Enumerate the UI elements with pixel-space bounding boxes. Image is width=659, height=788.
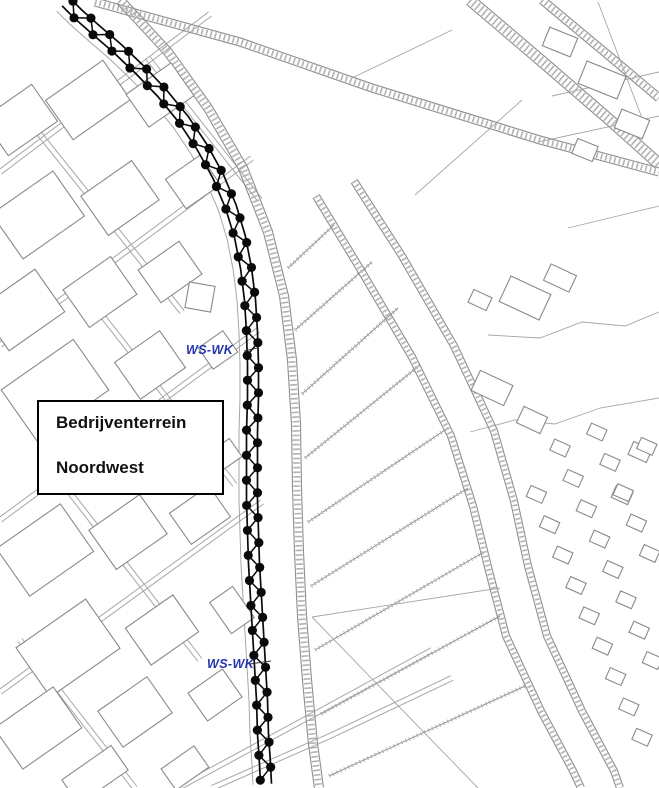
boundary-dot [86, 14, 95, 23]
building-outline [63, 257, 137, 328]
building-outline [165, 155, 220, 209]
boundary-dot [253, 726, 262, 735]
house-outline [639, 545, 659, 563]
house-outline [553, 546, 573, 564]
boundary-dot [252, 701, 261, 710]
boundary-dot [258, 613, 267, 622]
map-viewport: Bedrijventerrein Noordwest WS-WK WS-WK [0, 0, 659, 788]
boundary-dot [255, 563, 264, 572]
boundary-dot [242, 238, 251, 247]
building-outline [89, 495, 167, 570]
boundary-dot [253, 438, 262, 447]
boundary-dot [244, 551, 253, 560]
building-outline [0, 269, 65, 351]
house-outline [592, 637, 612, 655]
boundary-dot [242, 326, 251, 335]
building-outline [516, 406, 547, 433]
building-outline [0, 171, 84, 259]
building-outline [0, 504, 94, 596]
building-outline [125, 595, 198, 665]
boundary-dot [240, 301, 249, 310]
house-outline [629, 621, 649, 639]
building-outline [544, 264, 577, 292]
boundary-dot [260, 638, 269, 647]
boundary-dot [254, 751, 263, 760]
boundary-dot [159, 99, 168, 108]
building-outline [542, 27, 577, 57]
house-outline [589, 530, 609, 548]
boundary-dot [254, 538, 263, 547]
boundary-dot [253, 488, 262, 497]
boundary-dot [243, 401, 252, 410]
building-outline [499, 276, 551, 320]
area-label-line1: Bedrijventerrein [56, 413, 218, 433]
building-outline [471, 370, 513, 405]
building-outline [185, 282, 215, 312]
house-outline [566, 577, 586, 595]
house-outline [579, 607, 599, 625]
boundary-dot [189, 139, 198, 148]
boundary-dot [262, 688, 271, 697]
boundary-dot [254, 388, 263, 397]
boundary-dot [256, 776, 265, 785]
building-outline [188, 669, 242, 721]
boundary-dot [248, 626, 257, 635]
boundary-dot [234, 252, 243, 261]
house-outline [603, 561, 623, 579]
house-outline [526, 485, 546, 503]
boundary-dot [191, 122, 200, 131]
house-outline [539, 516, 559, 534]
boundary-dot [245, 576, 254, 585]
boundary-dot [257, 588, 266, 597]
building-outline [572, 138, 598, 161]
boundary-dot [124, 47, 133, 56]
boundary-dot [176, 102, 185, 111]
boundary-dot [242, 425, 251, 434]
boundary-dot [228, 228, 237, 237]
building-outline [468, 289, 492, 310]
house-outline [563, 469, 583, 487]
building-outline [98, 677, 172, 747]
boundary-dot [243, 376, 252, 385]
boundary-dot [159, 82, 168, 91]
boundary-dot [253, 513, 262, 522]
building-outline [210, 586, 255, 633]
building-outline [0, 84, 57, 155]
house-outline [600, 453, 620, 471]
boundary-dot [250, 288, 259, 297]
boundary-dot [243, 526, 252, 535]
building-outline [62, 746, 128, 788]
boundary-dot [254, 363, 263, 372]
house-outline [619, 698, 639, 716]
boundary-dot [253, 338, 262, 347]
area-label-line2: Noordwest [56, 458, 218, 478]
house-outline [626, 514, 646, 532]
house-outline [605, 668, 625, 686]
house-outline [616, 591, 636, 609]
house-outline [587, 423, 607, 441]
boundary-dot [205, 144, 214, 153]
boundary-dot [246, 601, 255, 610]
building-outline [614, 109, 649, 139]
boundary-dot [253, 463, 262, 472]
boundary-dot [242, 501, 251, 510]
boundary-dot [253, 413, 262, 422]
zone-label-ws-wk-1: WS-WK [186, 343, 233, 357]
boundary-dot [125, 63, 134, 72]
boundary-dot [242, 476, 251, 485]
boundary-dot [107, 46, 116, 55]
boundary-dot [238, 277, 247, 286]
area-label-box: Bedrijventerrein Noordwest [37, 400, 224, 495]
zone-label-ws-wk-2: WS-WK [207, 657, 254, 671]
boundary-dot [88, 30, 97, 39]
house-outline [632, 728, 652, 746]
boundary-dot [69, 13, 78, 22]
boundary-dot [264, 737, 273, 746]
house-outline [576, 500, 596, 518]
house-outline [642, 652, 659, 670]
boundary-dot [143, 81, 152, 90]
boundary-dot [221, 204, 230, 213]
map-canvas [0, 0, 659, 788]
boundary-dot [212, 182, 221, 191]
boundary-dot [227, 189, 236, 198]
boundary-dot [235, 213, 244, 222]
boundary-dot [142, 64, 151, 73]
boundary-dot [243, 351, 252, 360]
boundary-dot [105, 30, 114, 39]
boundary-dot [242, 451, 251, 460]
boundary-dot [247, 263, 256, 272]
boundary-dot [261, 663, 270, 672]
boundary-dot [263, 713, 272, 722]
building-outline [161, 746, 209, 788]
building-outline [81, 161, 159, 236]
boundary-dot [217, 166, 226, 175]
boundary-dot [201, 160, 210, 169]
boundary-dot [251, 676, 260, 685]
house-outline [550, 439, 570, 457]
boundary-dot [175, 119, 184, 128]
building-outline [46, 60, 131, 139]
boundary-dot [252, 313, 261, 322]
boundary-dot [266, 763, 275, 772]
